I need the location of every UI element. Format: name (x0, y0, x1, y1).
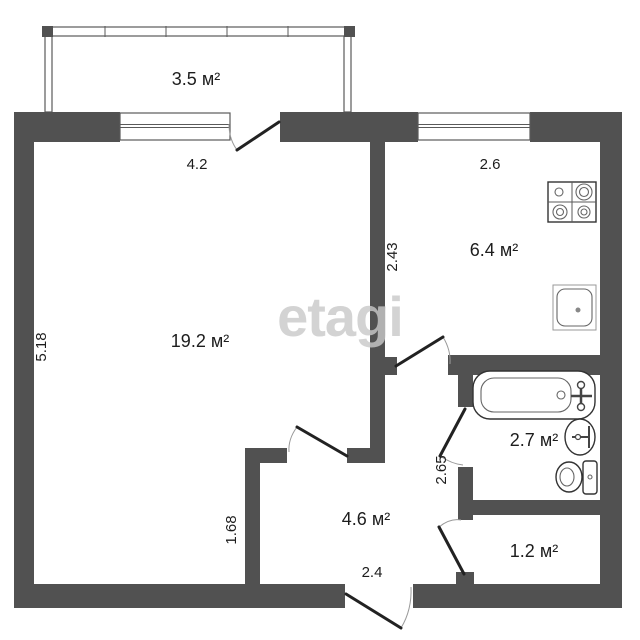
door-leaf (297, 427, 347, 456)
kitchen-sink-icon (553, 285, 596, 330)
floor-plan: etagi 3.5 м² 19.2 м² 6.4 м² 2.7 м² 4.6 м… (0, 0, 640, 640)
door-leaf (346, 594, 401, 628)
railing-right (344, 36, 351, 112)
door-leaf (237, 122, 279, 150)
railing-post (42, 26, 53, 37)
room-label-storage: 1.2 м² (510, 541, 558, 561)
dim-living-lower: 1.68 (223, 515, 240, 544)
bathtub-icon (473, 371, 595, 419)
dim-hallway-width: 2.4 (362, 564, 383, 581)
watermark: etagi (277, 285, 403, 348)
dim-kitchen-width: 2.6 (480, 156, 501, 173)
floor-plan-drawing: etagi 3.5 м² 19.2 м² 6.4 м² 2.7 м² 4.6 м… (0, 0, 640, 640)
balcony-window (120, 113, 230, 140)
window-frame (120, 113, 230, 140)
dim-balcony-window: 4.2 (187, 156, 208, 173)
entrance-door (346, 587, 411, 628)
room-label-hallway: 4.6 м² (342, 509, 390, 529)
door-swing-arc (289, 427, 297, 452)
bathtub-faucet-handle (578, 382, 585, 389)
door-leaf (440, 409, 465, 456)
room-label-balcony: 3.5 м² (172, 69, 220, 89)
door-leaf (396, 337, 443, 366)
wall-right (600, 112, 622, 608)
walls (14, 112, 622, 608)
dimension-labels: 4.2 2.6 5.18 2.43 1.68 2.65 2.4 (33, 156, 500, 581)
dim-kitchen-height: 2.43 (384, 242, 401, 271)
room-label-kitchen: 6.4 м² (470, 240, 518, 260)
bathtub-faucet-handle (578, 404, 585, 411)
railing-top (44, 27, 350, 36)
dim-living-height: 5.18 (33, 332, 50, 361)
kitchen-door (396, 337, 450, 366)
wall-left (14, 112, 34, 608)
balcony-door (229, 122, 279, 150)
door-swing-arc (401, 587, 411, 628)
door-swing-arc (439, 520, 461, 527)
railing-left (45, 36, 52, 112)
toilet-cistern (583, 461, 597, 494)
wall-living-hallway-b (347, 448, 385, 463)
dim-bathroom-height: 2.65 (433, 455, 450, 484)
wall-bottom-a (14, 584, 345, 608)
wall-top-a (14, 112, 120, 142)
wall-bottom-b (413, 584, 622, 608)
stove-icon (548, 182, 596, 222)
wall-top-b (280, 112, 418, 142)
room-label-living: 19.2 м² (171, 331, 229, 351)
door-leaf (439, 527, 464, 574)
sink-drain (576, 308, 581, 313)
storage-door (439, 520, 464, 574)
wall-living-hallway-c (245, 463, 260, 584)
toilet-icon (556, 461, 597, 494)
kitchen-window (418, 113, 530, 140)
wall-bathroom-left-top (458, 355, 473, 407)
sink-drain (576, 435, 581, 440)
railing-post (344, 26, 355, 37)
wall-bathroom-storage (458, 500, 600, 515)
bathroom-sink-icon (565, 419, 595, 455)
room-label-bathroom: 2.7 м² (510, 430, 558, 450)
window-frame (418, 113, 530, 140)
living-room-door (289, 427, 347, 456)
wall-living-hallway-a (245, 448, 287, 463)
